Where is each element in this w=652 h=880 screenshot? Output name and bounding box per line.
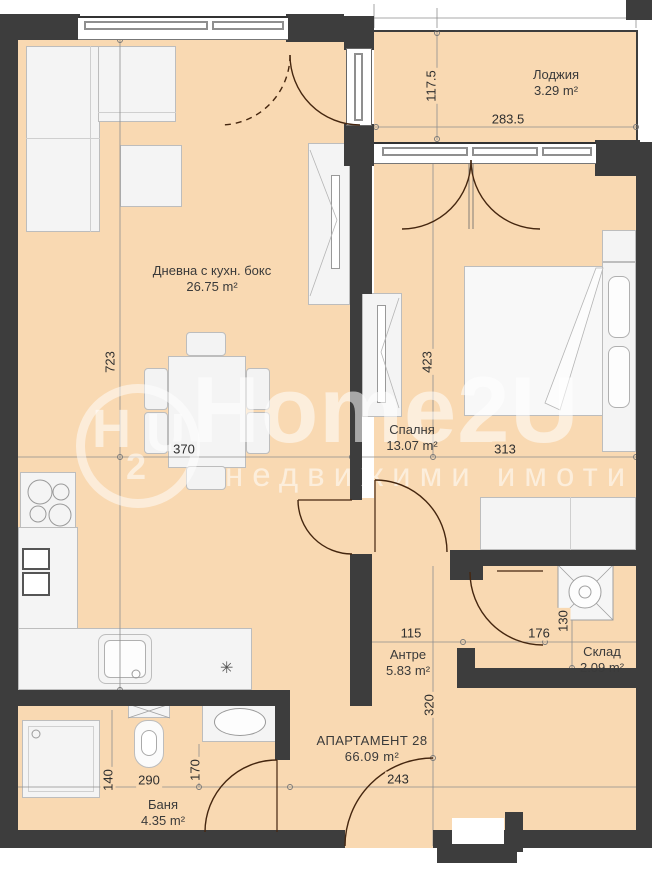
room-area: 3.29 m² <box>533 83 579 99</box>
apartment-name: АПАРТАМЕНТ 28 <box>317 733 428 749</box>
room-label-loggia: Лоджия 3.29 m² <box>533 67 579 98</box>
room-name: Лоджия <box>533 67 579 83</box>
room-area: 2.09 m² <box>580 660 624 676</box>
room-area: 5.83 m² <box>386 663 430 679</box>
dimension-bath-right-height: 170 <box>188 757 203 783</box>
dimension-bedroom-height: 423 <box>420 349 435 375</box>
room-name: Спалня <box>386 422 437 438</box>
room-label-hall: Антре 5.83 m² <box>386 647 430 678</box>
room-name: Дневна с кухн. бокс <box>153 263 272 279</box>
floor-plan: ✳ <box>0 0 652 880</box>
apartment-area: 66.09 m² <box>317 749 428 765</box>
dimension-bedroom-width: 313 <box>492 442 518 457</box>
room-label-storage: Склад 2.09 m² <box>580 644 624 675</box>
dimension-storage-width: 176 <box>526 626 552 641</box>
dimension-loggia-height: 117.5 <box>424 68 439 104</box>
dimension-storage-height: 130 <box>556 608 571 634</box>
dimension-living-width: 370 <box>171 442 197 457</box>
dimension-living-height: 723 <box>103 349 118 375</box>
room-label-bedroom: Спалня 13.07 m² <box>386 422 437 453</box>
room-area: 26.75 m² <box>153 279 272 295</box>
room-label-living: Дневна с кухн. бокс 26.75 m² <box>153 263 272 294</box>
dimension-loggia-width: 283.5 <box>490 112 527 127</box>
room-label-bath: Баня 4.35 m² <box>141 797 185 828</box>
apartment-label: АПАРТАМЕНТ 28 66.09 m² <box>317 733 428 764</box>
dimension-bath-left-height: 140 <box>101 767 116 793</box>
dimension-bath-width: 290 <box>136 773 162 788</box>
room-name: Склад <box>580 644 624 660</box>
dimension-hall-width: 115 <box>399 626 424 641</box>
room-area: 13.07 m² <box>386 438 437 454</box>
room-name: Баня <box>141 797 185 813</box>
dimension-hall-height: 320 <box>422 692 437 718</box>
dimension-entrance-width: 243 <box>385 772 411 787</box>
room-name: Антре <box>386 647 430 663</box>
room-area: 4.35 m² <box>141 813 185 829</box>
